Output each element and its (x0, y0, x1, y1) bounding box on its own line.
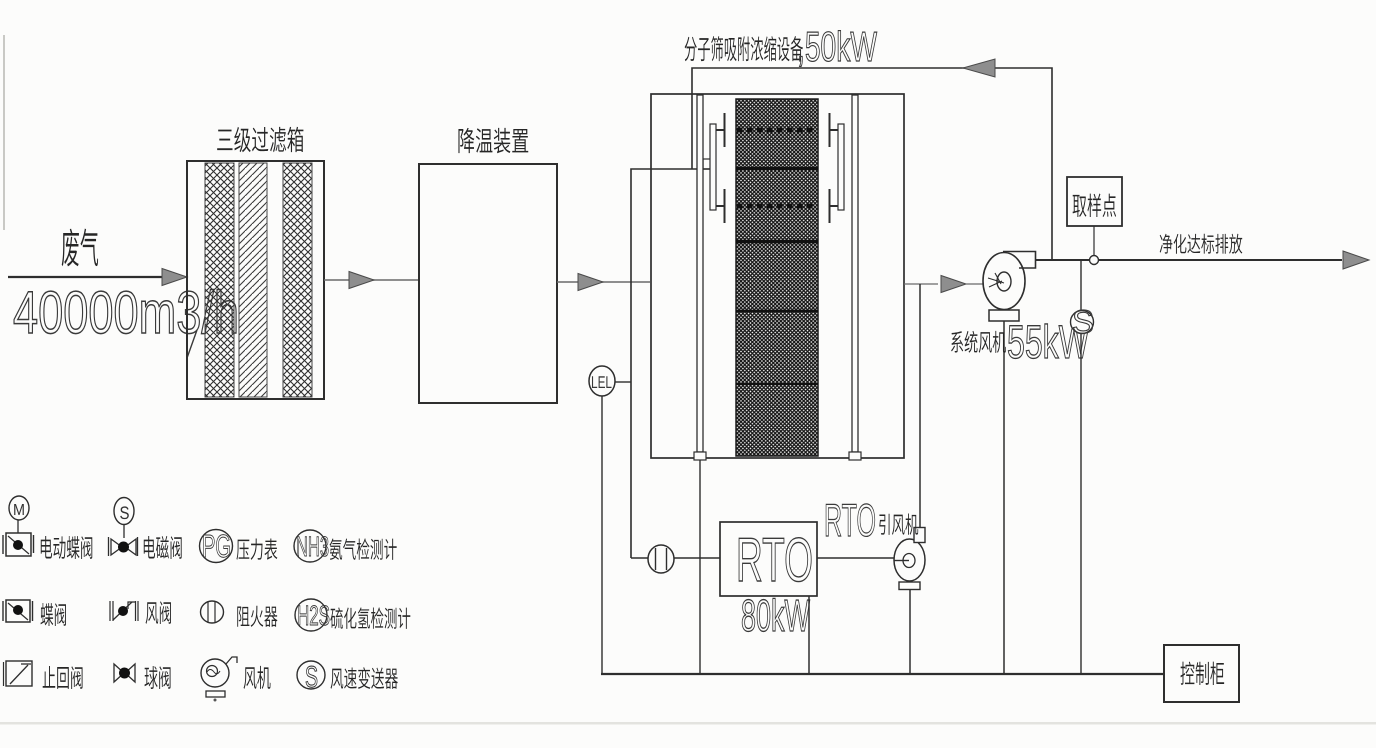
svg-text:RTO: RTO (824, 494, 876, 546)
svg-text:S: S (305, 661, 318, 694)
svg-text:LEL: LEL (591, 373, 612, 392)
svg-text:80kW: 80kW (741, 590, 810, 641)
svg-text:S: S (120, 503, 130, 523)
svg-text:S: S (1072, 303, 1094, 340)
svg-text:NH3: NH3 (296, 531, 329, 562)
svg-text:PG: PG (202, 528, 231, 564)
svg-text:M: M (13, 502, 25, 519)
svg-text:,50kW: ,50kW (797, 23, 877, 70)
svg-text:RTO: RTO (736, 526, 813, 595)
svg-text:H2S: H2S (297, 600, 330, 631)
